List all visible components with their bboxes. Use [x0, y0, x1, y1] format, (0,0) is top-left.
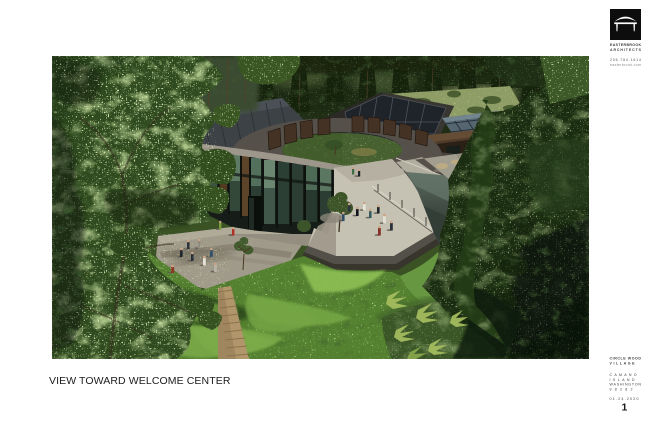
svg-text:1: 1: [622, 402, 628, 414]
svg-text:easterbrook.com: easterbrook.com: [610, 63, 641, 67]
svg-text:ISLAND: ISLAND: [610, 378, 635, 382]
svg-text:WASHINGTON: WASHINGTON: [610, 383, 642, 387]
svg-text:EASTERBROOK: EASTERBROOK: [610, 43, 641, 47]
svg-text:206.784.1614: 206.784.1614: [610, 58, 641, 62]
svg-text:01.24.2020: 01.24.2020: [610, 397, 639, 401]
svg-text:98282: 98282: [610, 387, 633, 391]
svg-text:CAMANO: CAMANO: [610, 373, 637, 377]
svg-text:ARCHITECTS: ARCHITECTS: [610, 48, 642, 52]
svg-text:VILLAGE: VILLAGE: [610, 361, 636, 365]
svg-text:CIRCLE WOOD: CIRCLE WOOD: [610, 357, 642, 361]
